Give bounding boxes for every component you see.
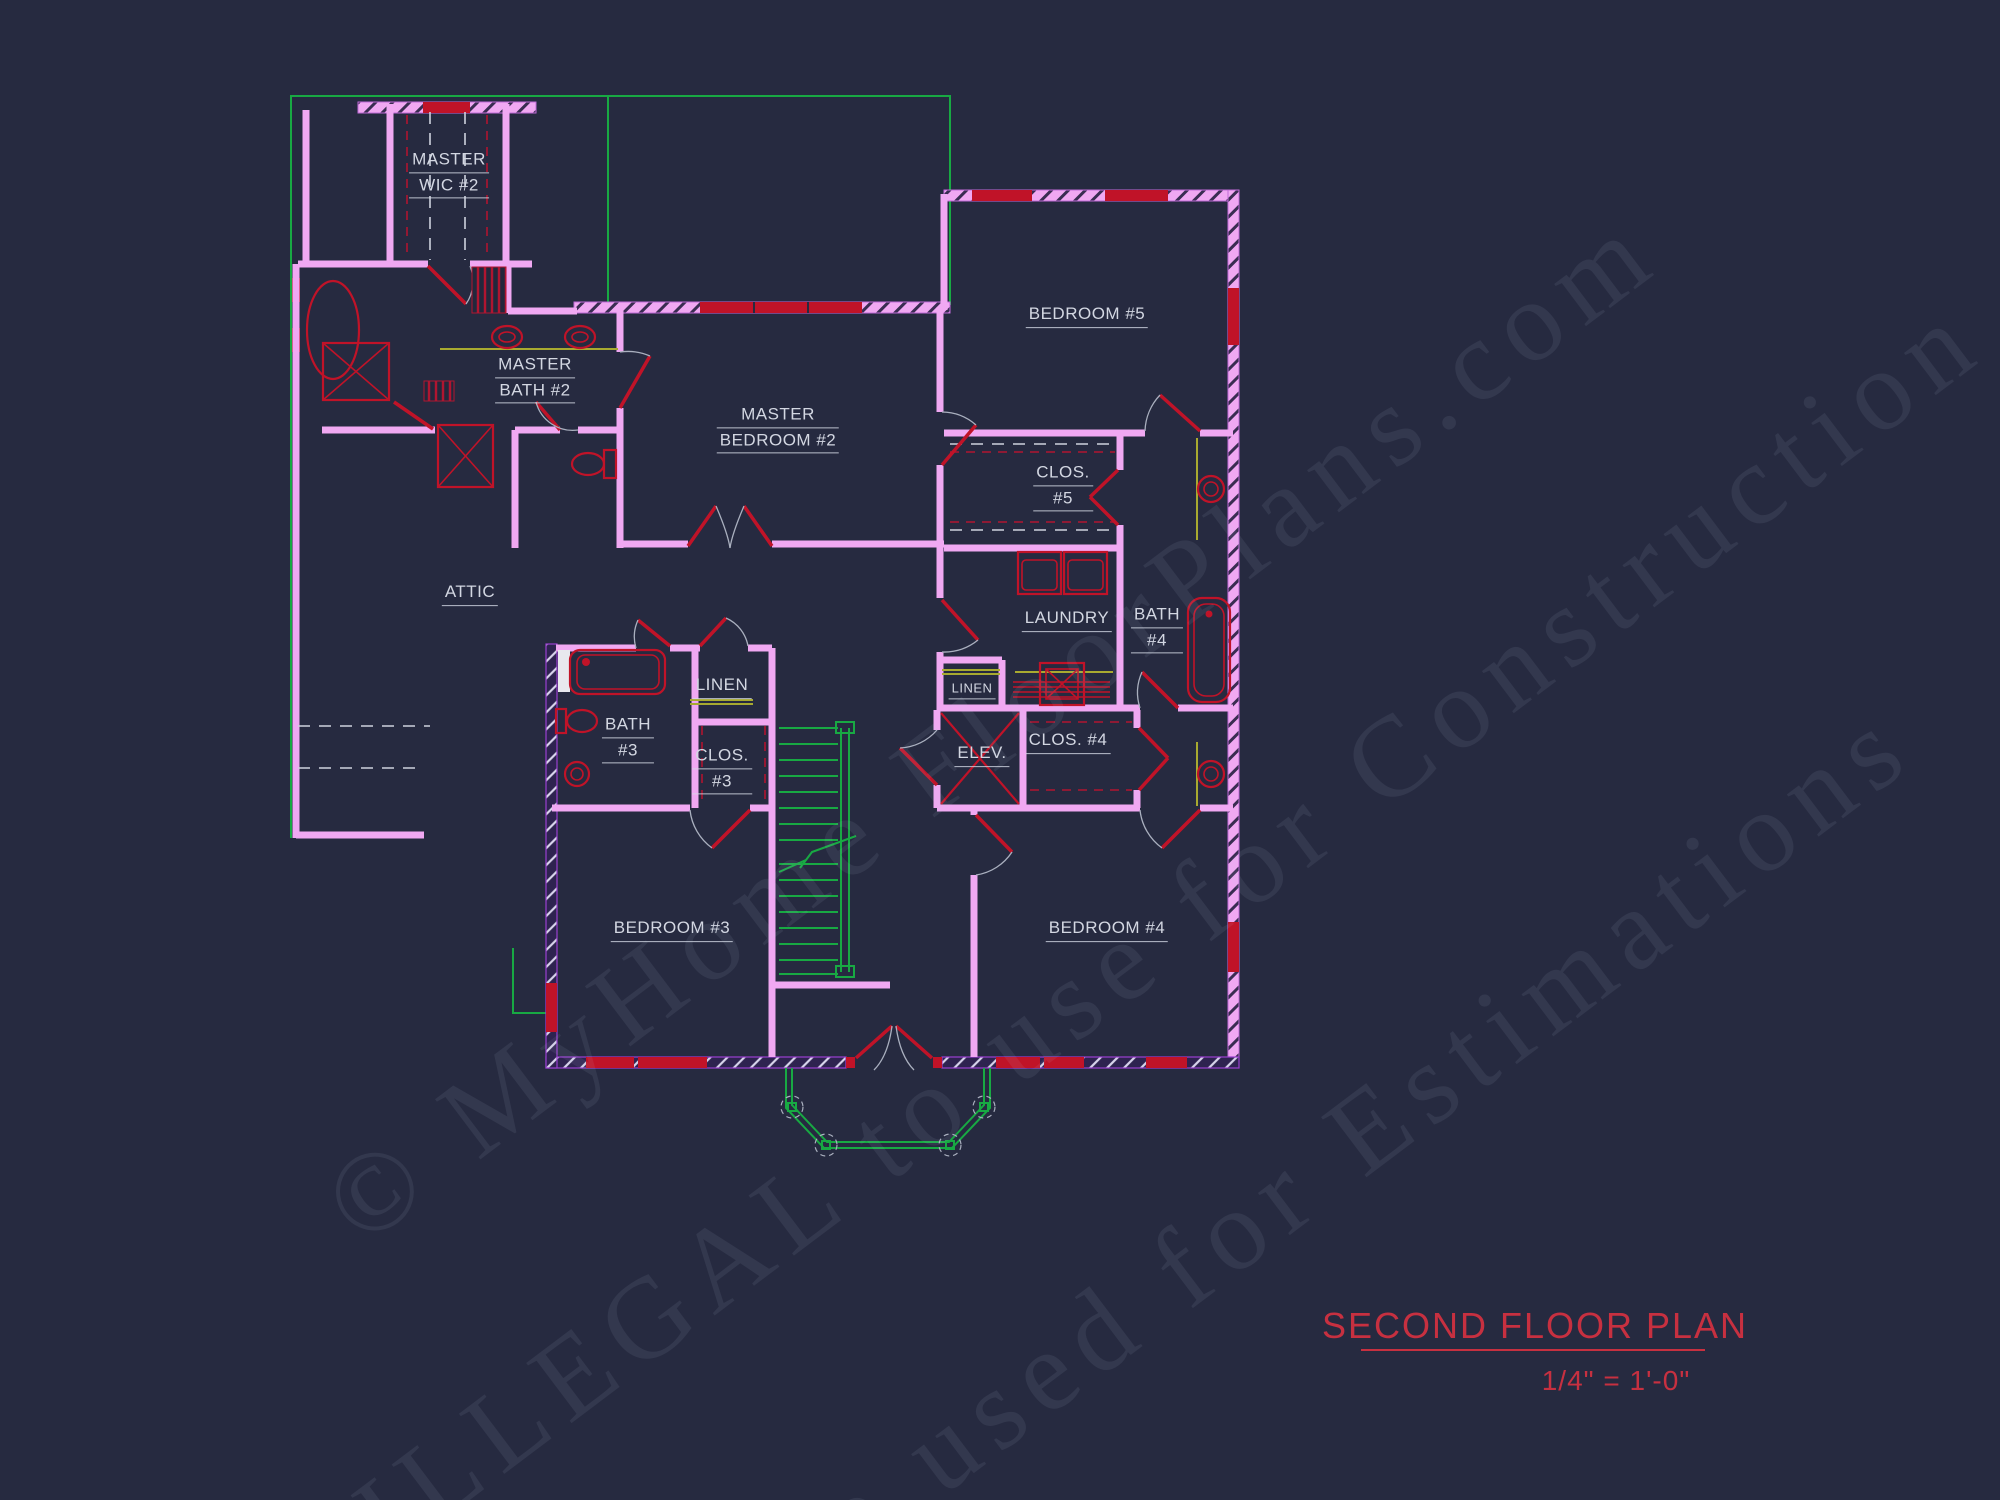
room-label-line: BEDROOM #2	[717, 431, 839, 454]
room-label-line: MASTER	[409, 150, 489, 173]
room-label-linen-small: LINEN	[949, 681, 996, 702]
room-label-line: #5	[1033, 489, 1093, 512]
room-label-line: BEDROOM #5	[1026, 305, 1148, 328]
room-label-bedroom4: BEDROOM #4	[1046, 919, 1168, 945]
closet-rod-lines	[298, 112, 1132, 806]
room-label-bedroom3: BEDROOM #3	[611, 919, 733, 945]
room-label-clos3: CLOS. #3	[692, 746, 752, 797]
room-label-line: LAUNDRY	[1022, 609, 1112, 632]
room-label-elevator: ELEV.	[954, 744, 1009, 770]
room-label-master-bath: MASTER BATH #2	[495, 355, 575, 406]
room-label-line: BEDROOM #4	[1046, 919, 1168, 942]
room-label-line: BEDROOM #3	[611, 919, 733, 942]
room-label-line: #3	[602, 741, 654, 764]
room-label-line: CLOS.	[692, 746, 752, 769]
room-label-line: ELEV.	[954, 744, 1009, 767]
room-label-line: BATH	[602, 715, 654, 738]
room-label-bath3: BATH #3	[602, 715, 654, 766]
room-label-clos5: CLOS. #5	[1033, 463, 1093, 514]
room-label-clos4: CLOS. #4	[1026, 731, 1111, 757]
room-label-bedroom5: BEDROOM #5	[1026, 305, 1148, 331]
room-label-master-wic: MASTER WIC #2	[409, 150, 489, 201]
interior-walls	[296, 104, 1233, 1057]
staircase	[779, 722, 856, 977]
scale-note: 1/4" = 1'-0"	[1542, 1365, 1691, 1397]
room-label-line: CLOS. #4	[1026, 731, 1111, 754]
floor-plan-page: © MyHome FloorPlans.com ILLEGAL to use f…	[0, 0, 2000, 1500]
room-label-attic: ATTIC	[442, 583, 498, 609]
room-label-bath4: BATH #4	[1131, 605, 1183, 656]
room-label-laundry: LAUNDRY	[1022, 609, 1112, 635]
room-label-line: MASTER	[717, 405, 839, 428]
room-label-line: MASTER	[495, 355, 575, 378]
balcony	[781, 1026, 995, 1156]
room-label-line: LINEN	[949, 681, 996, 699]
room-label-line: LINEN	[693, 676, 752, 699]
room-label-linen-hall: LINEN	[693, 676, 752, 702]
room-label-line: #3	[692, 772, 752, 795]
room-label-line: BATH #2	[495, 381, 575, 404]
room-label-line: ATTIC	[442, 583, 498, 606]
room-label-line: BATH	[1131, 605, 1183, 628]
title-underline	[1361, 1349, 1705, 1351]
room-label-line: #4	[1131, 631, 1183, 654]
room-label-master-bedroom: MASTER BEDROOM #2	[717, 405, 839, 456]
room-label-line: WIC #2	[409, 176, 489, 199]
room-label-line: CLOS.	[1033, 463, 1093, 486]
page-title: SECOND FLOOR PLAN	[1322, 1305, 1748, 1347]
